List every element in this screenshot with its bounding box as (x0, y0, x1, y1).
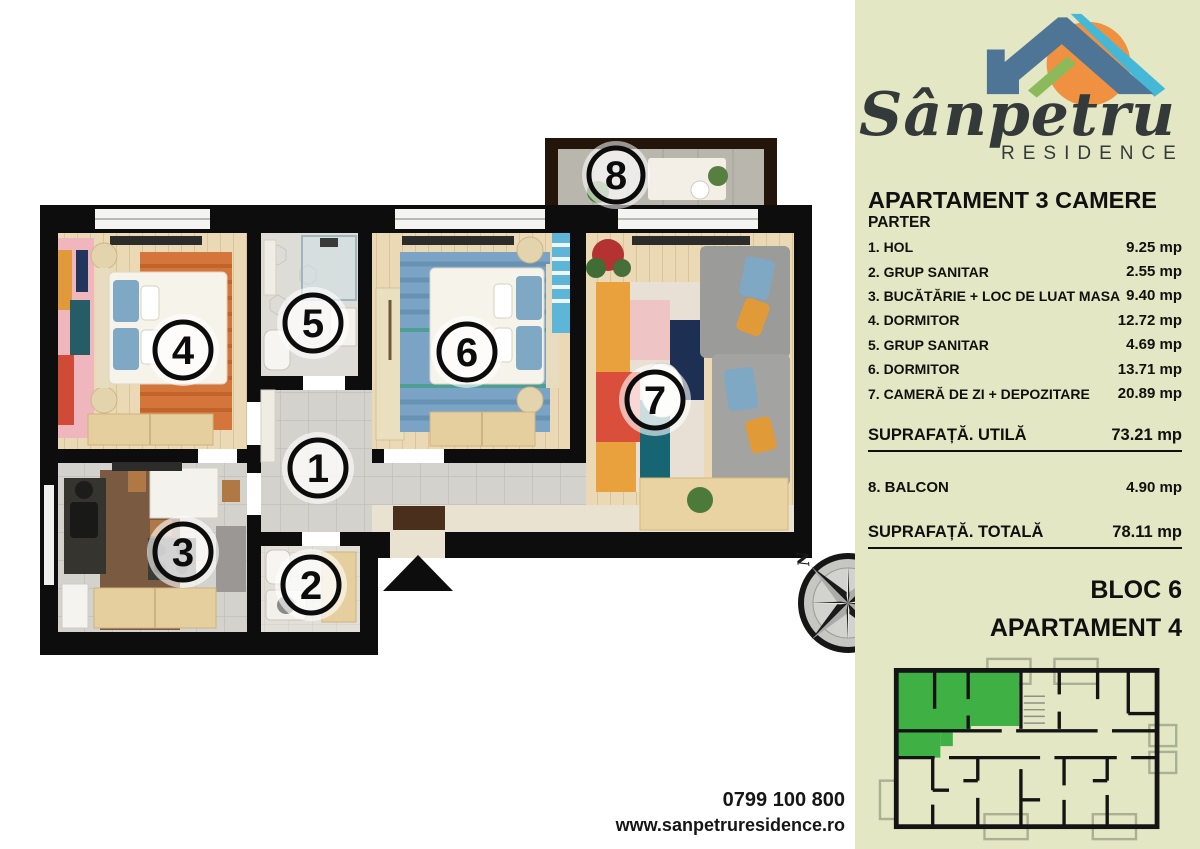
room-label: 3. BUCĂTĂRIE + LOC DE LUAT MASA (868, 288, 1120, 304)
svg-text:4: 4 (172, 329, 195, 373)
info-sidebar: Sânpetru RESIDENCE APARTAMENT 3 CAMERE P… (855, 0, 1200, 849)
room-row-5: 5. GRUP SANITAR4.69 mp (868, 333, 1182, 357)
room-area: 9.25 mp (1126, 239, 1182, 256)
room-row-4: 4. DORMITOR12.72 mp (868, 308, 1182, 332)
marker-room-8: 8 (582, 141, 650, 209)
entrance-arrow (383, 555, 453, 591)
apartment-number: APARTAMENT 4 (990, 609, 1182, 647)
balcony-row: 8. BALCON 4.90 mp (868, 479, 1182, 496)
svg-text:8: 8 (605, 154, 627, 198)
marker-room-2: 2 (275, 549, 347, 621)
svg-text:3: 3 (172, 531, 194, 575)
usable-area-value: 73.21 mp (1111, 426, 1182, 445)
total-area-value: 78.11 mp (1112, 523, 1182, 542)
website-url: www.sanpetruresidence.ro (540, 813, 845, 837)
svg-text:5: 5 (302, 302, 324, 346)
svg-text:6: 6 (456, 331, 478, 375)
svg-text:2: 2 (300, 564, 322, 608)
balcony-value: 4.90 mp (1126, 479, 1182, 496)
usable-area-label: SUPRAFAȚĂ. UTILĂ (868, 426, 1027, 445)
living7-furniture (586, 239, 790, 530)
highlighted-apartment (898, 672, 1019, 757)
room-area: 9.40 mp (1126, 287, 1182, 304)
entrance-door (390, 532, 445, 558)
compass-north-label: N (795, 550, 813, 568)
room-row-1: 1. HOL9.25 mp (868, 235, 1182, 259)
room-list: 1. HOL9.25 mp 2. GRUP SANITAR2.55 mp 3. … (868, 235, 1182, 406)
room-row-7: 7. CAMERĂ DE ZI + DEPOZITARE20.89 mp (868, 381, 1182, 405)
room-row-3: 3. BUCĂTĂRIE + LOC DE LUAT MASA9.40 mp (868, 284, 1182, 308)
brand-subtitle: RESIDENCE (1001, 143, 1184, 165)
marker-room-1: 1 (282, 432, 354, 504)
building-plan (877, 656, 1184, 842)
balcony-room (545, 138, 777, 212)
room-row-2: 2. GRUP SANITAR2.55 mp (868, 259, 1182, 283)
usable-area-row: SUPRAFAȚĂ. UTILĂ 73.21 mp (868, 426, 1182, 452)
room-label: 6. DORMITOR (868, 361, 960, 377)
apartment-flyer: { "brand": { "name": "Sânpetru", "subtit… (0, 0, 1200, 849)
total-area-label: SUPRAFAȚĂ. TOTALĂ (868, 523, 1043, 542)
marker-room-3: 3 (147, 516, 219, 588)
contact-block: 0799 100 800 www.sanpetruresidence.ro (540, 788, 845, 837)
svg-text:7: 7 (644, 379, 666, 423)
listing-floor: PARTER (868, 214, 931, 232)
balcony-label: 8. BALCON (868, 479, 949, 496)
room-label: 5. GRUP SANITAR (868, 337, 989, 353)
room-area: 2.55 mp (1126, 263, 1182, 280)
room-area: 4.69 mp (1126, 336, 1182, 353)
total-area-row: SUPRAFAȚĂ. TOTALĂ 78.11 mp (868, 523, 1182, 549)
room-row-6: 6. DORMITOR13.71 mp (868, 357, 1182, 381)
room-area: 12.72 mp (1118, 312, 1182, 329)
marker-room-6: 6 (431, 316, 503, 388)
brand-name: Sânpetru (859, 80, 1176, 150)
room-label: 2. GRUP SANITAR (868, 264, 989, 280)
room-area: 20.89 mp (1118, 385, 1182, 402)
marker-room-4: 4 (147, 314, 219, 386)
svg-text:1: 1 (307, 447, 329, 491)
marker-room-5: 5 (277, 287, 349, 359)
room-label: 4. DORMITOR (868, 312, 960, 328)
marker-room-7: 7 (619, 364, 691, 436)
listing-title: APARTAMENT 3 CAMERE (868, 187, 1157, 214)
room-area: 13.71 mp (1118, 361, 1182, 378)
room-label: 1. HOL (868, 239, 913, 255)
floor-plan: 1 2 3 4 5 6 7 8 (0, 0, 855, 849)
block-number: BLOC 6 (990, 571, 1182, 609)
miniplan-stairs (1024, 696, 1045, 723)
unit-identifier: BLOC 6 APARTAMENT 4 (990, 571, 1182, 647)
phone-number: 0799 100 800 (540, 788, 845, 813)
room-label: 7. CAMERĂ DE ZI + DEPOZITARE (868, 386, 1090, 402)
